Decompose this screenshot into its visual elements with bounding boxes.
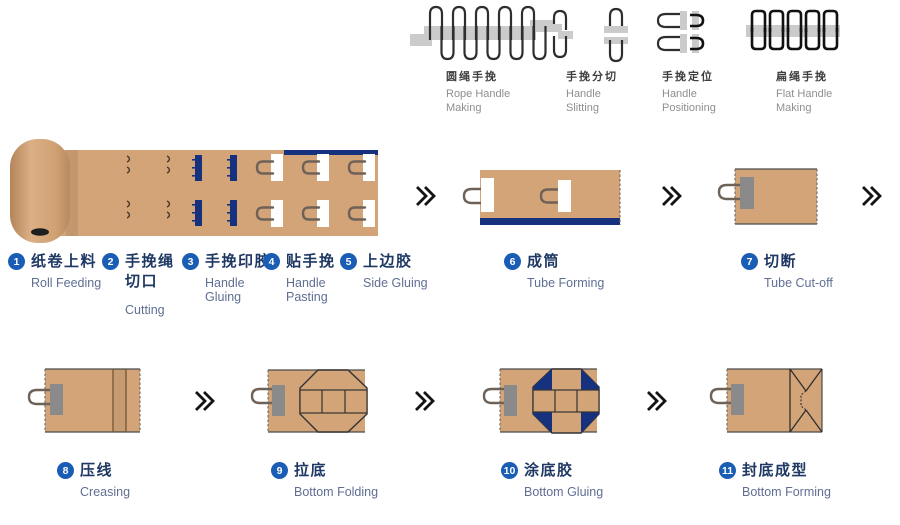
handle-positioning-icon [658, 11, 703, 53]
tube-forming-illustration [464, 170, 620, 225]
step-zh: 涂底胶 [524, 461, 603, 481]
step-zh: 拉底 [294, 461, 378, 481]
step-zh: 切断 [764, 252, 833, 272]
flow-arrow-icon [648, 392, 665, 410]
top-process-zh: 手挽定位 [662, 68, 716, 84]
step-number-badge: 7 [741, 253, 758, 270]
step-zh: 手挽绳 切口 [125, 252, 175, 291]
step-zh: 手挽印胶 [205, 252, 271, 272]
step-en: Tube Cut-off [764, 276, 833, 291]
step-label-4: 4 贴手挽 Handle Pasting [263, 252, 336, 305]
step-label-3: 3 手挽印胶 Handle Gluing [182, 252, 271, 305]
step-en: Bottom Forming [742, 485, 831, 500]
step-en: Cutting [125, 303, 175, 318]
step-label-2: 2 手挽绳 切口 Cutting [102, 252, 175, 318]
step-number-badge: 8 [57, 462, 74, 479]
handle-slitting-icon [547, 9, 628, 61]
step-zh: 上边胶 [363, 252, 428, 272]
flat-handle-making-icon [746, 11, 840, 49]
tube-cutoff-illustration [719, 169, 817, 224]
step-number-badge: 1 [8, 253, 25, 270]
top-process-label-handle-positioning: 手挽定位 Handle Positioning [662, 68, 716, 116]
slit-piece-left [547, 11, 573, 57]
step-zh: 压线 [80, 461, 130, 481]
step-number-badge: 4 [263, 253, 280, 270]
rope-handle-making-icon [410, 7, 554, 59]
flow-arrow-icon [196, 392, 213, 410]
step-en: Bottom Folding [294, 485, 378, 500]
step-number-badge: 9 [271, 462, 288, 479]
top-process-label-flat-handle: 扁绳手挽 Flat Handle Making [776, 68, 832, 116]
top-process-label-rope-handle: 圆绳手挽 Rope Handle Making [446, 68, 510, 116]
step-label-9: 9 拉底 Bottom Folding [271, 461, 378, 499]
step-number-badge: 10 [501, 462, 518, 479]
step-label-8: 8 压线 Creasing [57, 461, 130, 499]
step-en: Bottom Gluing [524, 485, 603, 500]
step-number-badge: 5 [340, 253, 357, 270]
step-zh: 成筒 [527, 252, 604, 272]
flow-arrow-icon [416, 392, 433, 410]
step-label-1: 1 纸卷上料 Roll Feeding [8, 252, 101, 290]
bottom-gluing-illustration [484, 369, 599, 433]
slit-piece-right [604, 9, 628, 61]
top-process-en: Flat Handle Making [776, 88, 832, 116]
step-label-11: 11 封底成型 Bottom Forming [719, 461, 831, 499]
bottom-forming-illustration [711, 369, 822, 432]
step-en: Handle Pasting [286, 276, 336, 306]
step-zh: 贴手挽 [286, 252, 336, 272]
top-process-label-handle-slitting: 手挽分切 Handle Slitting [566, 68, 618, 116]
flow-arrow-icon [863, 187, 880, 205]
step-label-6: 6 成筒 Tube Forming [504, 252, 604, 290]
top-process-zh: 圆绳手挽 [446, 68, 510, 84]
process-flow-diagram: 圆绳手挽 Rope Handle Making 手挽分切 Handle Slit… [0, 0, 900, 525]
step-number-badge: 11 [719, 462, 736, 479]
step-label-5: 5 上边胶 Side Gluing [340, 252, 428, 290]
step-en: Creasing [80, 485, 130, 500]
top-process-en: Rope Handle Making [446, 88, 510, 116]
positioning-row [658, 11, 703, 30]
step-zh: 封底成型 [742, 461, 831, 481]
top-process-zh: 扁绳手挽 [776, 68, 832, 84]
positioning-row [658, 34, 703, 53]
roll-feeding-illustration [10, 139, 70, 243]
top-process-en: Handle Positioning [662, 88, 716, 116]
step-en: Handle Gluing [205, 276, 271, 306]
step-number-badge: 3 [182, 253, 199, 270]
step-en: Roll Feeding [31, 276, 101, 291]
step-en: Tube Forming [527, 276, 604, 291]
step-number-badge: 2 [102, 253, 119, 270]
step-zh: 纸卷上料 [31, 252, 101, 272]
flow-arrow-icon [417, 187, 434, 205]
roll-core [31, 228, 49, 236]
creasing-illustration [29, 369, 140, 432]
bottom-folding-illustration [252, 370, 367, 432]
step-label-7: 7 切断 Tube Cut-off [741, 252, 833, 290]
step-en: Side Gluing [363, 276, 428, 291]
paper-web [58, 150, 378, 236]
flow-arrow-icon [663, 187, 680, 205]
top-process-en: Handle Slitting [566, 88, 618, 116]
step-number-badge: 6 [504, 253, 521, 270]
step-label-10: 10 涂底胶 Bottom Gluing [501, 461, 603, 499]
top-process-zh: 手挽分切 [566, 68, 618, 84]
